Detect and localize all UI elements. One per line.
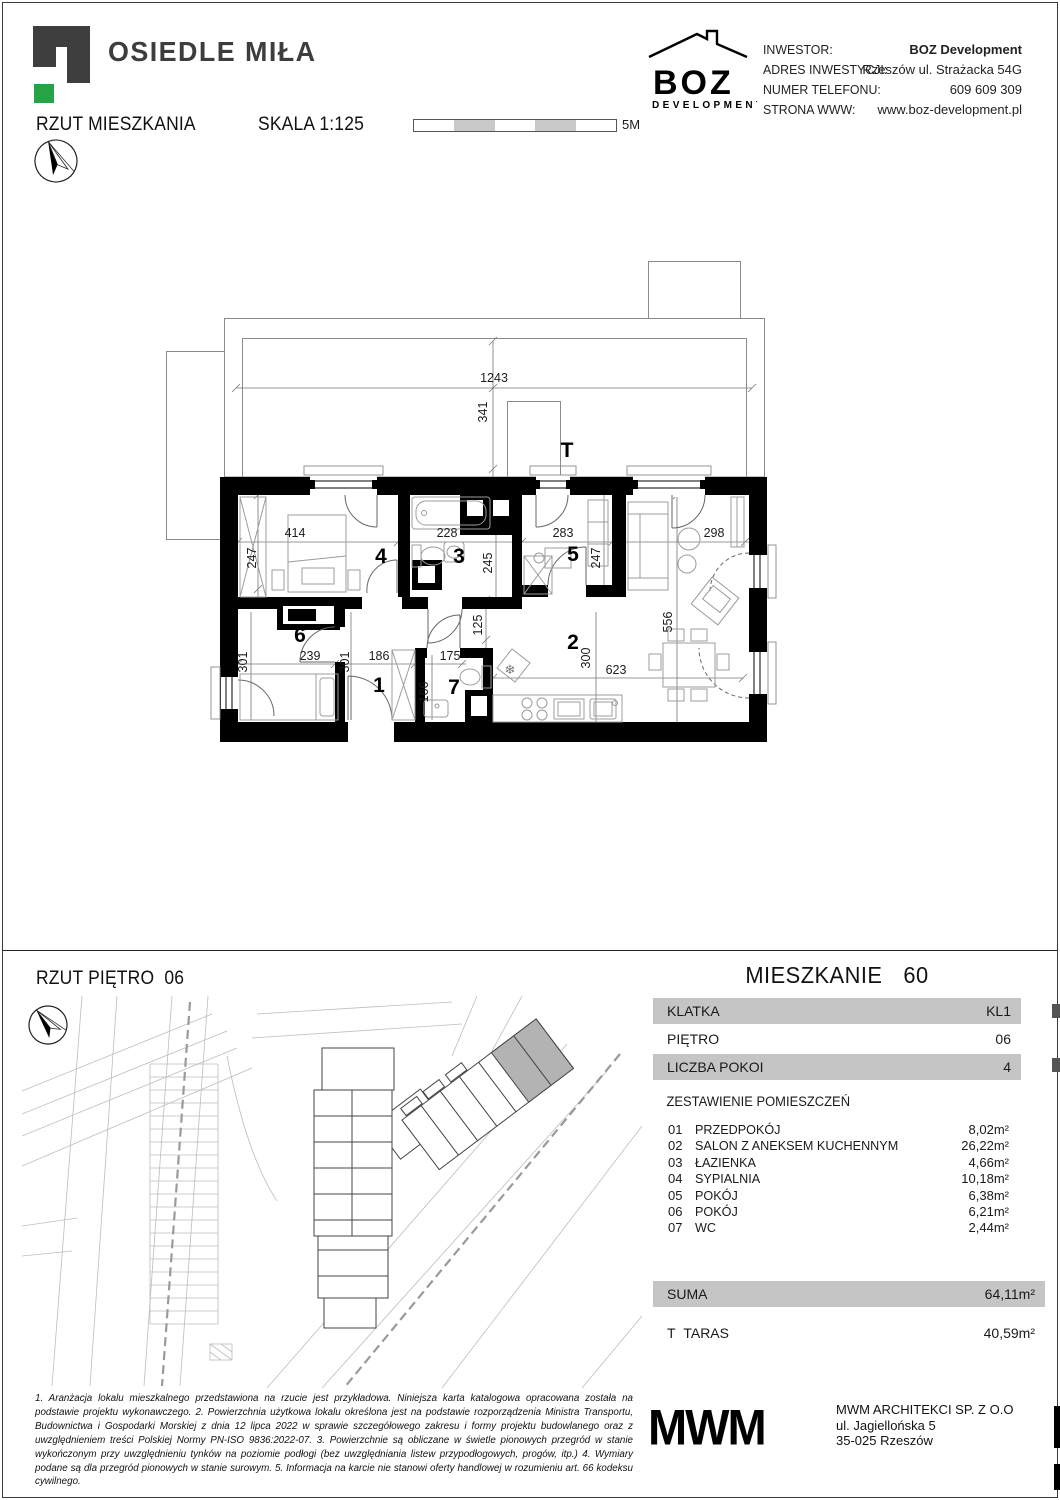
dim-label: 556 (661, 612, 675, 633)
fridge-snowflake-icon: ❄ (505, 662, 516, 677)
mwm-logo: MWM (648, 1398, 765, 1456)
dim-label: 166 (417, 682, 431, 703)
dim-label: 186 (369, 649, 390, 663)
boz-logo-text: BOZ (653, 64, 734, 102)
boz-development-logo-icon: BOZ DEVELOPMENT (645, 26, 757, 112)
room-list-row: 06POKÓJ6,21m² (653, 1204, 1021, 1220)
doc-title: RZUT MIESZKANIA (36, 114, 196, 136)
apartment-title-label: MIESZKANIE (745, 962, 882, 989)
row-label: LICZBA POKOI (667, 1059, 763, 1075)
dimension-lines (232, 337, 756, 742)
table-row-pietro: PIĘTRO 06 (653, 1026, 1021, 1052)
www-value: www.boz-development.pl (822, 102, 1022, 117)
dim-label: 414 (285, 526, 306, 540)
room-list-row: 05POKÓJ6,38m² (653, 1188, 1021, 1204)
row-value: 4 (1003, 1059, 1011, 1075)
room-list-row: 04SYPIALNIA10,18m² (653, 1171, 1021, 1187)
site-plan (22, 996, 642, 1388)
dim-label: 247 (589, 548, 603, 569)
room-no: 04 (668, 1171, 695, 1187)
apartment-title-value: 60 (903, 962, 928, 989)
room-list-row: 02SALON Z ANEKSEM KUCHENNYM26,22m² (653, 1138, 1021, 1154)
room-name: POKÓJ (695, 1188, 960, 1204)
room-area: 6,21m² (969, 1204, 1009, 1220)
taras-value: 40,59m² (984, 1325, 1035, 1341)
dim-label: 175 (440, 649, 461, 663)
dim-label: 283 (553, 526, 574, 540)
room-no: 05 (668, 1188, 695, 1204)
dim-label: 247 (245, 548, 259, 569)
dim-label: 239 (300, 649, 321, 663)
site-building (314, 1011, 573, 1328)
architect-addr1: ul. Jagiellońska 5 (836, 1418, 1013, 1434)
room-number: 4 (375, 545, 387, 568)
catalog-page: OSIEDLE MIŁA RZUT MIESZKANIA SKALA 1:125… (0, 0, 1060, 1500)
room-no: 02 (668, 1138, 695, 1154)
legal-notes: 1. Aranżacja lokalu mieszkalnego przedst… (35, 1392, 633, 1489)
room-name: ŁAZIENKA (695, 1155, 960, 1171)
floor-title: RZUT PIĘTRO 06 (36, 968, 184, 990)
floor-plan: ❄ 1243 341 414 247 228 245 283 247 298 1… (140, 245, 800, 775)
architect-addr2: 35-025 Rzeszów (836, 1433, 1013, 1449)
suma-row: SUMA 64,11m² (653, 1281, 1045, 1307)
dim-label: 1243 (480, 371, 508, 385)
room-name: PRZEDPOKÓJ (695, 1122, 960, 1138)
floor-title-value: 06 (164, 968, 184, 989)
phone-value: 609 609 309 (822, 82, 1022, 97)
room-list-title: ZESTAWIENIE POMIESZCZEŃ (653, 1094, 1006, 1109)
room-area: 8,02m² (969, 1122, 1009, 1138)
room-area: 10,18m² (961, 1171, 1009, 1187)
room-area: 26,22m² (961, 1138, 1009, 1154)
taras-text: TARAS (683, 1325, 729, 1341)
taras-label: T TARAS (667, 1325, 729, 1341)
wardrobe-detail (288, 609, 316, 621)
dim-label: 125 (471, 615, 485, 636)
room-area: 6,38m² (969, 1188, 1009, 1204)
room-name: SYPIALNIA (695, 1171, 953, 1187)
edge-mark (1052, 1058, 1060, 1072)
apartment-title: MIESZKANIE 60 (662, 962, 1012, 989)
edge-mark (1054, 1406, 1060, 1448)
room-name: WC (695, 1220, 960, 1236)
floor-title-label: RZUT PIĘTRO (36, 968, 154, 989)
room-no: 01 (668, 1122, 695, 1138)
room-number: 6 (294, 624, 306, 647)
scale-label: SKALA 1:125 (258, 114, 364, 136)
dim-label: 300 (579, 648, 593, 669)
room-area: 4,66m² (969, 1155, 1009, 1171)
suma-value: 64,11m² (985, 1286, 1035, 1302)
suma-label: SUMA (667, 1286, 707, 1302)
dim-label: 341 (476, 402, 490, 423)
room-list-row: 03ŁAZIENKA4,66m² (653, 1155, 1021, 1171)
scale-bar-label: 5M (622, 117, 640, 132)
room-no: 06 (668, 1204, 695, 1220)
room-number: 2 (567, 631, 579, 654)
edge-mark (1052, 1004, 1060, 1018)
room-number: 7 (448, 676, 460, 699)
room-area: 2,44m² (969, 1220, 1009, 1236)
dim-label: 301 (236, 652, 250, 673)
dim-label: 301 (338, 652, 352, 673)
section-divider (3, 950, 1057, 951)
brand-title: OSIEDLE MIŁA (108, 36, 316, 68)
room-number: 5 (567, 543, 579, 566)
room-list-row: 01PRZEDPOKÓJ8,02m² (653, 1122, 1021, 1138)
terrace-label: T (561, 439, 574, 462)
room-no: 07 (668, 1220, 695, 1236)
scale-bar (413, 119, 617, 132)
row-value: 06 (995, 1031, 1011, 1047)
table-row-klatka: KLATKA KL1 (653, 998, 1021, 1024)
table-row-liczba-pokoi: LICZBA POKOI 4 (653, 1054, 1021, 1080)
room-list-row: 07WC2,44m² (653, 1220, 1021, 1236)
dim-label: 298 (704, 526, 725, 540)
dim-label: 228 (437, 526, 458, 540)
apartment-table: MIESZKANIE 60 KLATKA KL1 PIĘTRO 06 LICZB… (653, 962, 1021, 1237)
room-no: 03 (668, 1155, 695, 1171)
room-number: 1 (373, 674, 385, 697)
row-value: KL1 (986, 1003, 1011, 1019)
boz-logo-subtext: DEVELOPMENT (652, 100, 757, 111)
address-value: Rzeszów ul. Strażacka 54G (822, 62, 1022, 77)
taras-symbol: T (667, 1325, 676, 1341)
investor-value: BOZ Development (822, 42, 1022, 57)
room-name: POKÓJ (695, 1204, 960, 1220)
architect-info: MWM ARCHITEKCI SP. Z O.O ul. Jagiellońsk… (836, 1402, 1013, 1449)
row-label: KLATKA (667, 1003, 720, 1019)
north-arrow-icon (32, 136, 82, 186)
dim-label: 245 (481, 553, 495, 574)
room-name: SALON Z ANEKSEM KUCHENNYM (695, 1138, 953, 1154)
room-number: 3 (453, 545, 465, 568)
dim-label: 623 (606, 663, 627, 677)
taras-row: T TARAS 40,59m² (653, 1320, 1045, 1346)
architect-name: MWM ARCHITEKCI SP. Z O.O (836, 1402, 1013, 1418)
edge-mark (1054, 1464, 1060, 1490)
osiedle-mila-logo-icon (32, 24, 94, 106)
row-label: PIĘTRO (667, 1031, 719, 1047)
